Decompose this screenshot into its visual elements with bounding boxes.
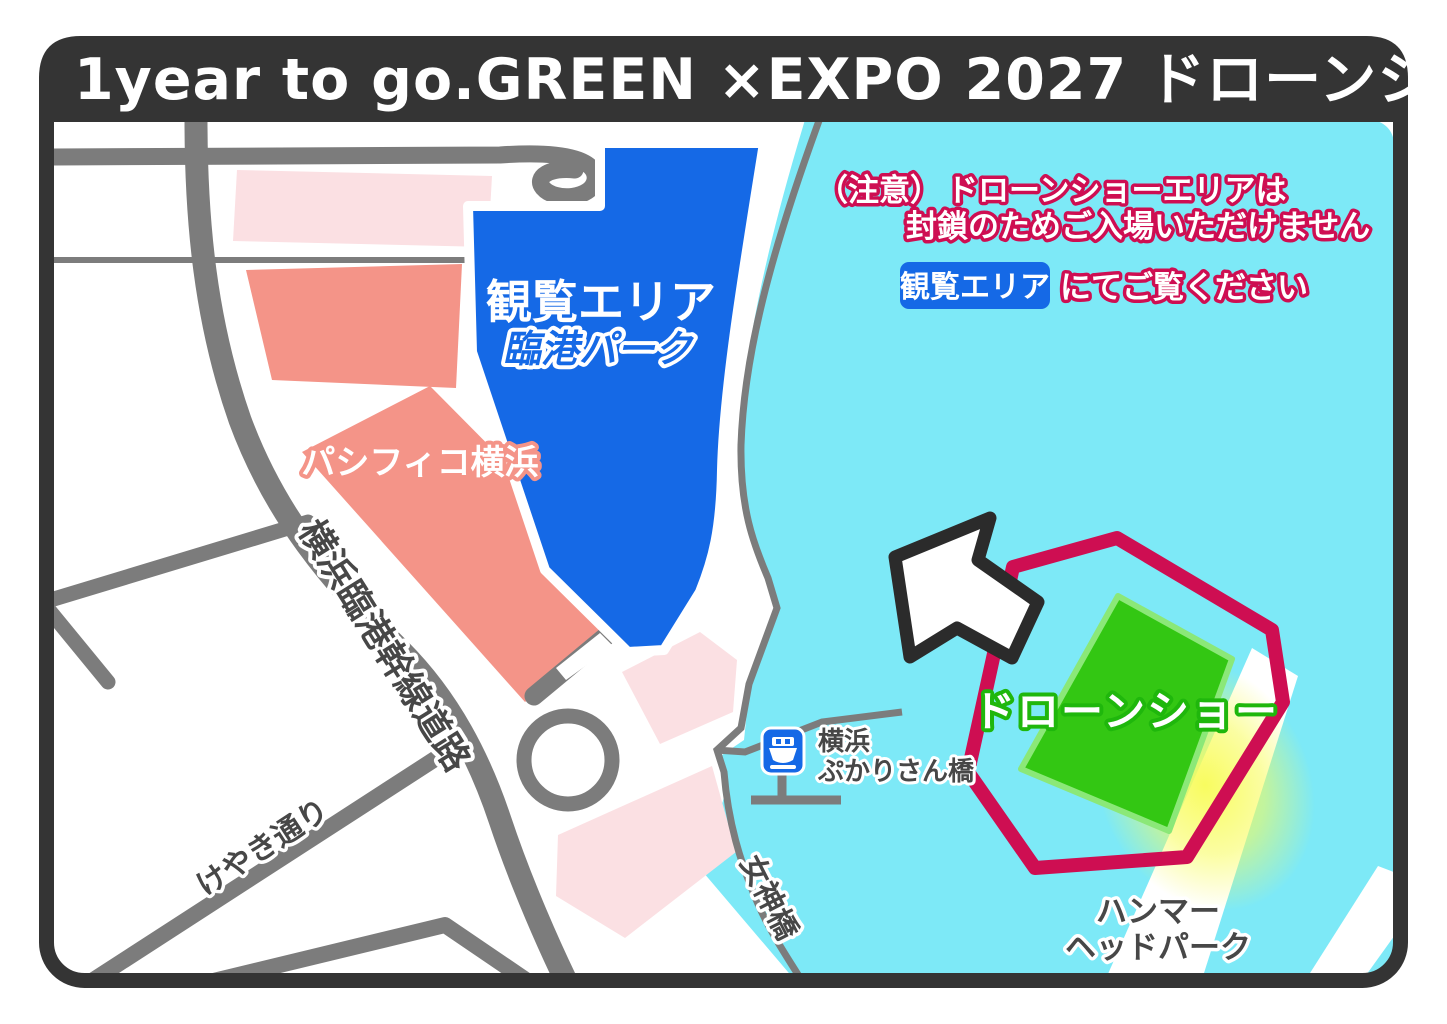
notice-line3: にてご覧ください (1060, 270, 1308, 306)
notice-line1-text: ドローンショーエリアは (947, 173, 1286, 209)
hammerhead-label-line1: ハンマー (1096, 894, 1220, 930)
ferry-icon (762, 728, 804, 774)
drone-show-map-page: 観覧エリア 臨港パーク パシフィコ横浜 横浜臨港幹線道路 けやき通り 女神橋 横… (0, 0, 1447, 1024)
drone-show-label: ドローンショー (973, 687, 1279, 736)
viewing-area-label: 観覧エリア (486, 275, 716, 329)
pier-label-line2: ぷかりさん橋 (817, 757, 975, 787)
page-title: 1year to go.GREEN ×EXPO 2027 ドローンショー (74, 47, 1447, 113)
viewing-area-badge-label: 観覧エリア (900, 270, 1050, 305)
hammerhead-label-line2: ヘッドパーク (1065, 930, 1251, 966)
pacifico-label: パシフィコ横浜 (301, 443, 538, 483)
pier-label-line1: 横浜 (818, 727, 870, 757)
rinko-park-label: 臨港パーク (501, 327, 700, 372)
notice-line1: （注意）ドローンショーエリアは (817, 173, 1286, 209)
map-canvas: 観覧エリア 臨港パーク パシフィコ横浜 横浜臨港幹線道路 けやき通り 女神橋 横… (40, 110, 1430, 1022)
roundabout (524, 716, 612, 804)
notice-caution-prefix: （注意） (817, 173, 941, 209)
notice-line2: 封鎖のためご入場いただけません (906, 209, 1370, 245)
